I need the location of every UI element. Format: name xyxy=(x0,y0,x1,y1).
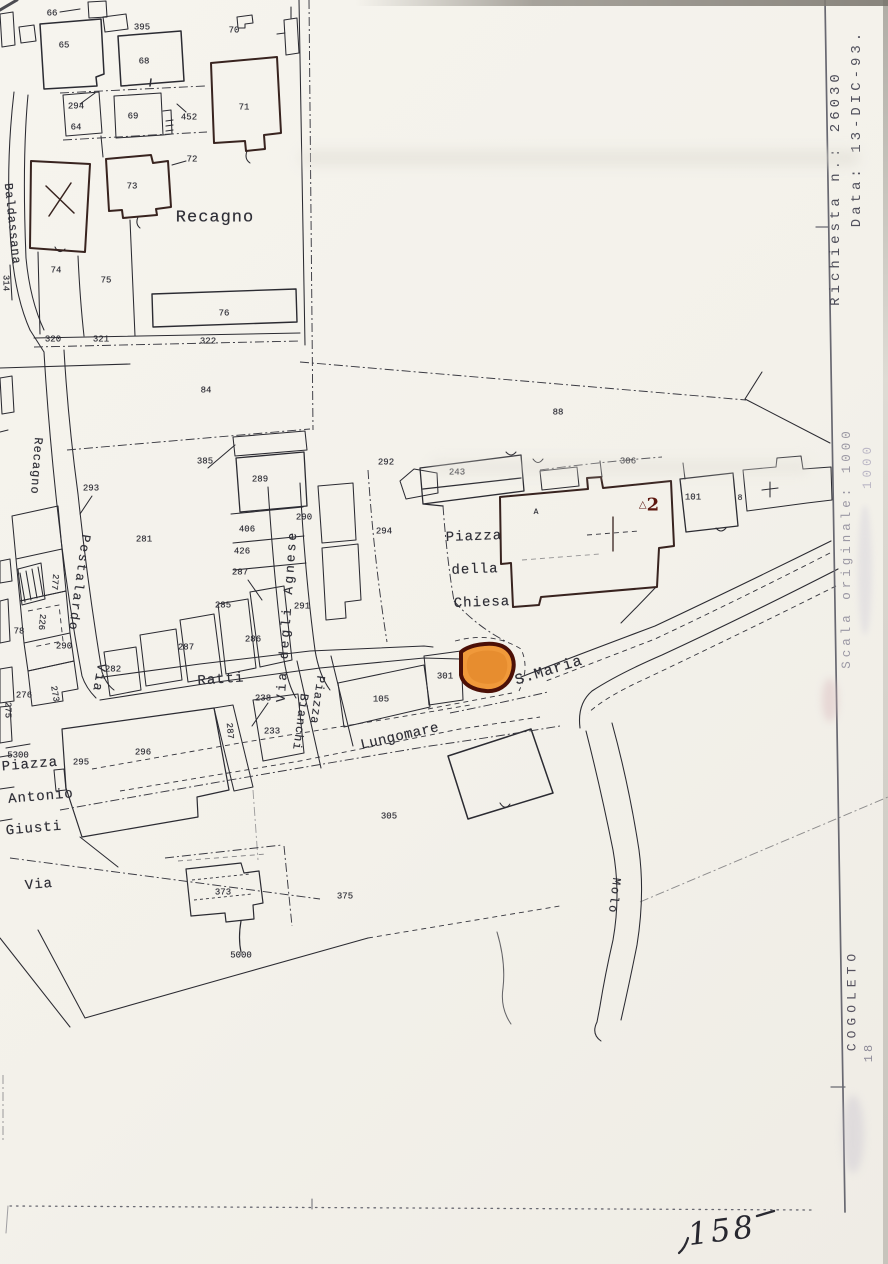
street-label: Ratti xyxy=(197,671,245,688)
street-label: Bianchi xyxy=(290,693,310,752)
scan-right-edge-shadow xyxy=(883,0,888,1264)
street-label: Piazza xyxy=(308,675,327,725)
parcel-number: 5000 xyxy=(230,952,252,961)
parcel-number: 276 xyxy=(16,692,32,701)
street-label: Via xyxy=(24,877,53,893)
street-label: S.Maria xyxy=(513,654,584,689)
parcel-number: 88 xyxy=(553,409,564,418)
parcel-number: 301 xyxy=(437,673,453,682)
parcel-number: 295 xyxy=(73,759,89,768)
parcel-number: 287 xyxy=(224,723,234,740)
margin-scale-secondary: 1000 xyxy=(862,443,875,489)
parcel-number: 373 xyxy=(215,889,231,898)
parcel-number: 273 xyxy=(48,685,60,703)
parcel-number: 65 xyxy=(59,42,70,51)
parcel-number: 226 xyxy=(36,614,46,631)
parcel-number: 320 xyxy=(45,336,61,345)
street-label: Recagno xyxy=(28,437,44,495)
street-label: Lungomare xyxy=(359,721,440,753)
street-label: Antonio xyxy=(8,787,75,807)
street-label: Piazza xyxy=(446,529,503,545)
parcel-number: 290 xyxy=(56,643,72,652)
map-labels-layer: BaldassanaRecagnoRecagnoPestalardoViaVia… xyxy=(0,0,888,1264)
benchmark-triangle-icon: △ xyxy=(639,500,647,511)
street-label: Baldassana xyxy=(2,183,23,266)
street-label: Chiesa xyxy=(454,595,511,611)
parcel-number: 78 xyxy=(14,628,25,637)
parcel-number: 70 xyxy=(229,27,240,36)
benchmark-point: △2 xyxy=(639,495,659,516)
parcel-number: 305 xyxy=(381,813,397,822)
margin-scale-original: Scala originale: 1000 xyxy=(841,427,854,669)
parcel-number: 75 xyxy=(101,277,112,286)
margin-date: Data: 13-DIC-93. xyxy=(850,29,864,227)
parcel-number: 233 xyxy=(264,728,280,737)
parcel-number: 314 xyxy=(1,275,10,291)
street-label: Recagno xyxy=(176,210,254,227)
parcel-number: 73 xyxy=(127,183,138,192)
parcel-number: 84 xyxy=(201,387,212,396)
parcel-number: 294 xyxy=(68,103,84,112)
parcel-number: 285 xyxy=(215,602,231,611)
parcel-number: 76 xyxy=(219,310,230,319)
street-label: Giusti xyxy=(5,820,62,839)
parcel-number: 294 xyxy=(376,528,392,537)
street-label: Molo xyxy=(606,877,622,915)
parcel-number: 292 xyxy=(378,459,394,468)
parcel-number: 277 xyxy=(49,574,59,591)
parcel-number: 322 xyxy=(200,338,216,347)
scanned-cadastral-map-page: BaldassanaRecagnoRecagnoPestalardoViaVia… xyxy=(0,0,888,1264)
parcel-number: 74 xyxy=(51,267,62,276)
parcel-number: 291 xyxy=(294,603,310,612)
parcel-number: 64 xyxy=(71,124,82,133)
parcel-number: 395 xyxy=(134,24,150,33)
parcel-number: 5300 xyxy=(7,752,29,761)
parcel-number: 101 xyxy=(685,494,701,503)
parcel-number: 72 xyxy=(187,156,198,165)
street-label: della xyxy=(451,562,498,578)
parcel-number: 375 xyxy=(337,893,353,902)
parcel-number: 286 xyxy=(245,636,261,645)
parcel-number: 306 xyxy=(620,458,636,467)
parcel-number: 290 xyxy=(296,514,312,523)
parcel-number: 293 xyxy=(83,485,99,494)
street-label: Via degli Agnese xyxy=(274,529,299,702)
parcel-number: 287 xyxy=(232,569,248,578)
scan-top-edge-shadow xyxy=(0,0,888,6)
parcel-number: 321 xyxy=(93,336,109,345)
parcel-number: 452 xyxy=(181,114,197,123)
parcel-number: A xyxy=(534,509,539,517)
parcel-number: 287 xyxy=(178,644,194,653)
parcel-number: 406 xyxy=(239,526,255,535)
margin-sheet-number: 18 xyxy=(863,1042,875,1062)
margin-municipality: COGOLETO xyxy=(846,949,859,1051)
parcel-number: 385 xyxy=(197,458,213,467)
parcel-number: 69 xyxy=(128,113,139,122)
parcel-number: 296 xyxy=(135,749,151,758)
parcel-number: 289 xyxy=(252,476,268,485)
margin-request-number: Richiesta n.: 26030 xyxy=(829,70,843,306)
parcel-number: 66 xyxy=(47,10,58,19)
parcel-number: 71 xyxy=(239,104,250,113)
benchmark-number: 2 xyxy=(647,495,660,516)
parcel-number: 105 xyxy=(373,696,389,705)
parcel-number: 243 xyxy=(449,469,465,478)
parcel-number: 8 xyxy=(738,495,743,503)
parcel-number: 238 xyxy=(255,695,271,704)
parcel-number: 282 xyxy=(105,666,121,675)
parcel-number: 281 xyxy=(136,536,152,545)
parcel-number: 426 xyxy=(234,548,250,557)
parcel-number: 68 xyxy=(139,58,150,67)
street-label: Pestalardo xyxy=(66,534,93,633)
parcel-number: 275 xyxy=(3,702,12,718)
